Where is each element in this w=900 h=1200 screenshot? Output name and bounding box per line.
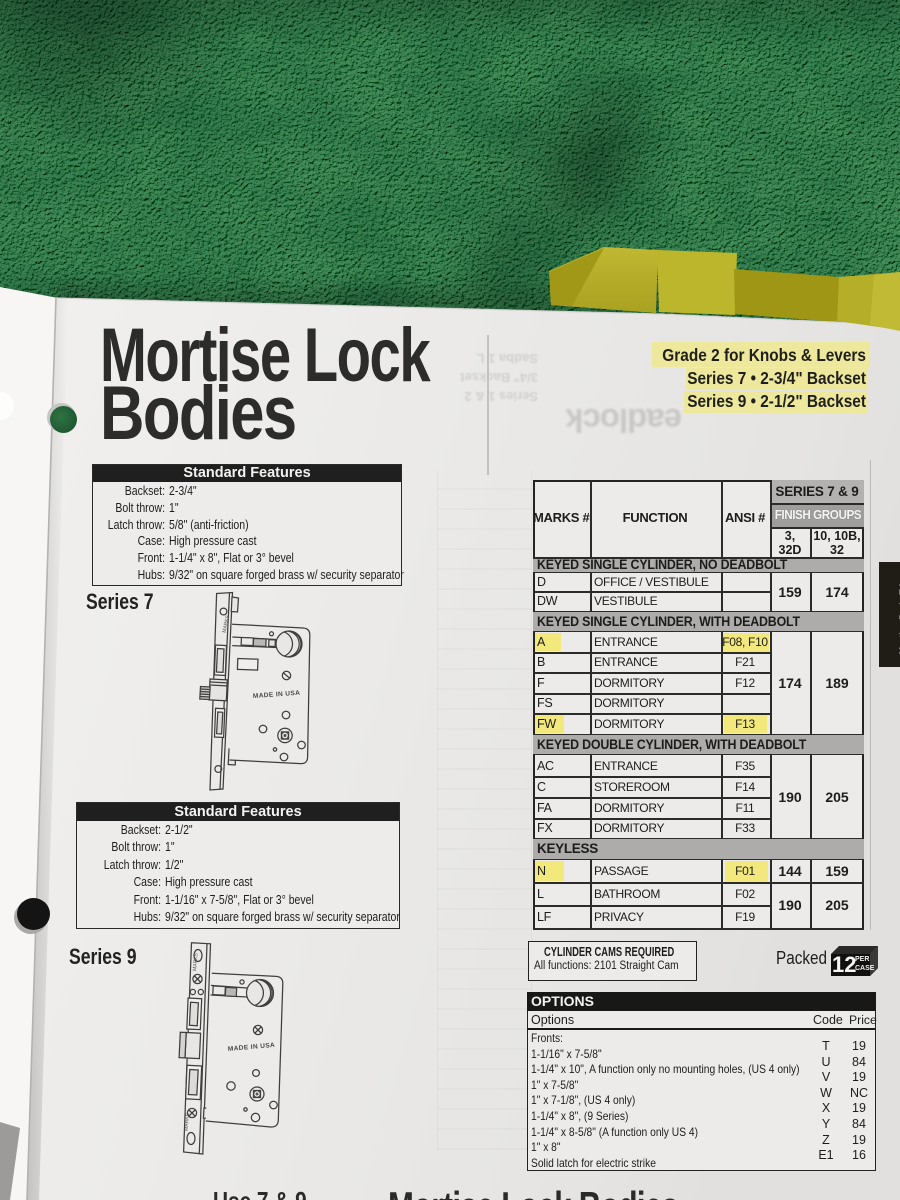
svg-text:CASE: CASE (855, 965, 875, 972)
svg-text:12: 12 (832, 952, 856, 977)
svg-text:PER: PER (855, 956, 869, 963)
